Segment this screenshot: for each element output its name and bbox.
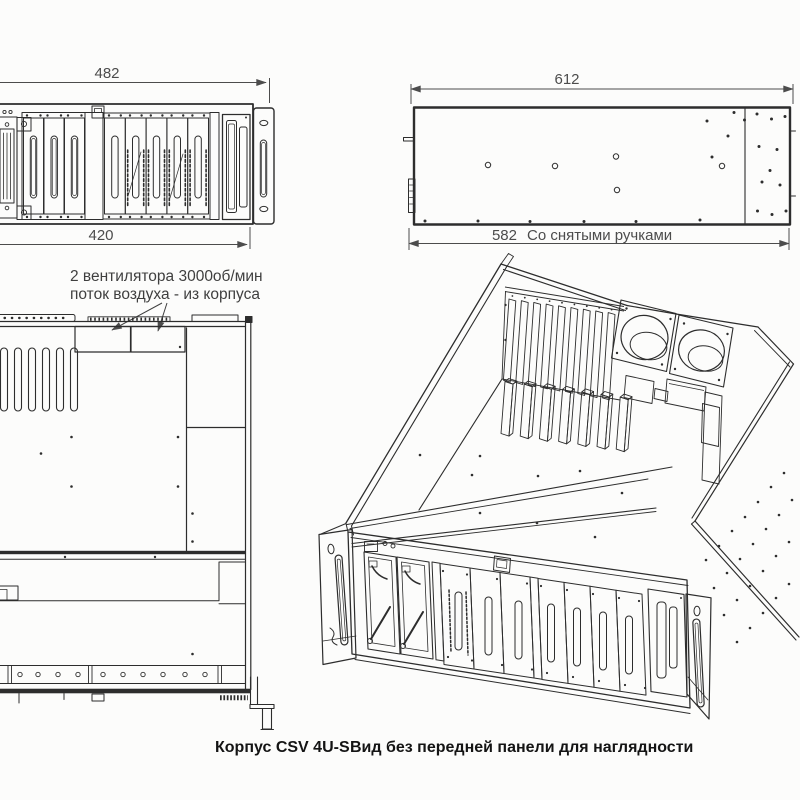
isometric-view bbox=[319, 254, 799, 720]
side-view: 612 582 Со снятыми ручками bbox=[404, 71, 796, 250]
section-view-screws bbox=[40, 346, 194, 656]
front-dim-overall-width: 482 bbox=[94, 65, 119, 82]
side-dim-no-handles-note: Со снятыми ручками bbox=[527, 227, 672, 244]
side-dim-overall-length: 612 bbox=[554, 71, 579, 88]
side-dim-no-handles-value: 582 bbox=[492, 227, 517, 244]
fan-annotation-line1: 2 вентилятора 3000об/мин bbox=[70, 268, 263, 285]
iso-floor-holes bbox=[419, 454, 624, 539]
iso-front-panel bbox=[319, 524, 711, 720]
iso-riser-slots bbox=[501, 379, 632, 452]
caption-model: Корпус CSV 4U-S bbox=[215, 739, 350, 756]
caption: Корпус CSV 4U-S Вид без передней панели … bbox=[215, 739, 693, 756]
section-view-drawing bbox=[0, 315, 274, 730]
iso-panel-screws bbox=[442, 570, 682, 689]
side-view-holes bbox=[424, 111, 788, 223]
technical-drawing-page: 482 420 bbox=[0, 0, 800, 800]
section-view: 2 вентилятора 3000об/мин поток воздуха -… bbox=[0, 268, 274, 730]
front-view-screws bbox=[26, 114, 247, 218]
front-dim-body-width: 420 bbox=[88, 227, 113, 244]
fan-annotation-line2: поток воздуха - из корпуса bbox=[70, 286, 260, 303]
front-view-drawing bbox=[0, 104, 274, 224]
side-view-drawing bbox=[404, 108, 796, 225]
iso-side-vent-holes bbox=[705, 472, 794, 644]
front-view: 482 420 bbox=[0, 65, 274, 249]
caption-note: Вид без передней панели для наглядности bbox=[350, 739, 693, 756]
chassis-drawing: 482 420 bbox=[0, 0, 800, 800]
